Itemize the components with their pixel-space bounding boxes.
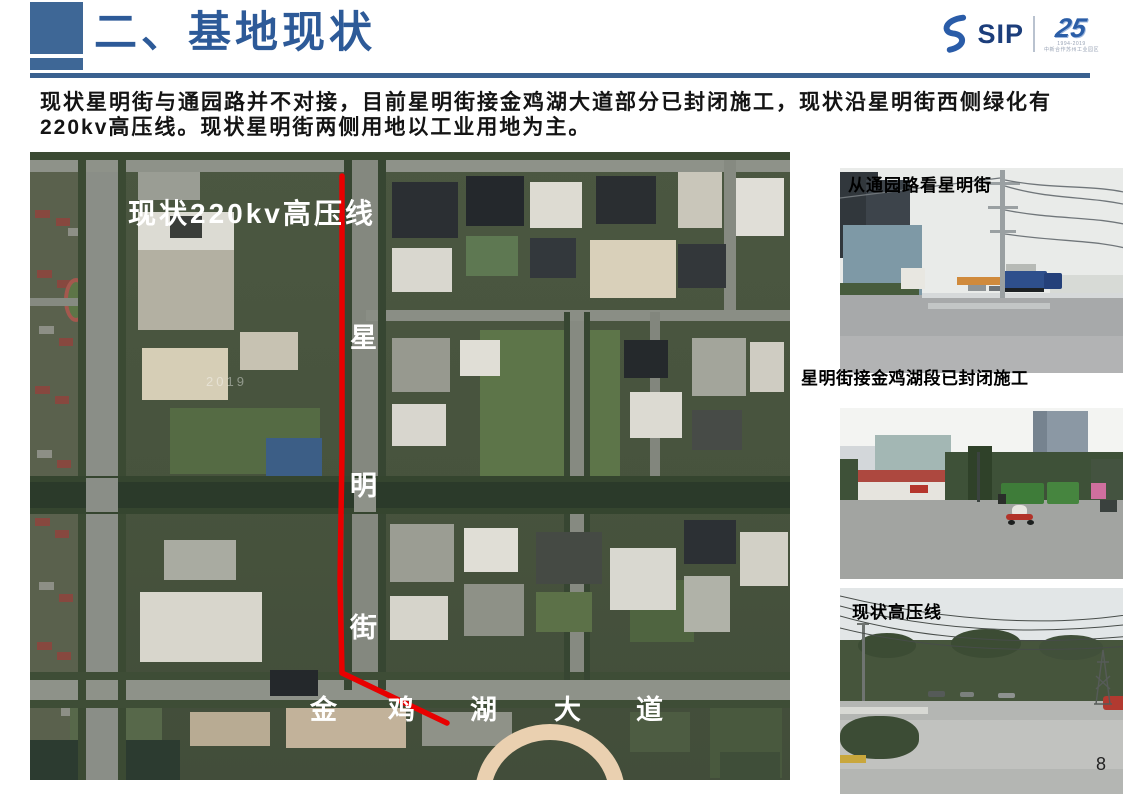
sip-swoosh-icon	[937, 14, 977, 54]
power-pole-icon	[840, 168, 1123, 373]
art-shape	[968, 446, 991, 504]
logo-divider	[1033, 16, 1035, 52]
photo-view-from-tongyuan-road: 从通园路看星明街	[840, 168, 1123, 373]
photo2-art	[840, 408, 1123, 579]
photo3-caption: 现状高压线	[852, 598, 942, 623]
satellite-map: 现状220kv高压线 星 明 街 金 鸡 湖 大 道 2019	[30, 152, 790, 780]
page-title: 二、基地现状	[94, 4, 376, 62]
intro-line-1: 现状星明街与通园路并不对接，目前星明街接金鸡湖大道部分已封闭施工，现状沿星明街西…	[40, 91, 1052, 114]
slide: 二、基地现状 SIP 25 1994-2019 中新合作苏州工业园区 现状星明街…	[0, 0, 1123, 794]
photo-existing-hv-line: 现状高压线	[840, 588, 1123, 794]
avenue-name-char-4: 大	[554, 688, 581, 727]
sip-logo-text: SIP	[977, 19, 1024, 50]
title-underline-rule	[30, 73, 1090, 78]
art-shape	[843, 482, 960, 503]
art-shape	[1047, 482, 1079, 504]
hv-line-label: 现状220kv高压线	[128, 192, 376, 232]
sip-logo: SIP 25 1994-2019 中新合作苏州工业园区	[937, 14, 1099, 54]
art-shape	[1100, 500, 1118, 512]
avenue-name-char-1: 金	[310, 688, 337, 727]
anniversary-block: 25 1994-2019 中新合作苏州工业园区	[1044, 16, 1099, 53]
art-shape	[910, 485, 928, 494]
art-shape	[840, 459, 858, 500]
street-name-char-1: 星	[350, 316, 377, 355]
art-shape	[977, 452, 980, 502]
hv-line-annotation	[30, 152, 790, 780]
title-decoration-bar	[30, 58, 83, 70]
anniversary-caption: 中新合作苏州工业园区	[1044, 47, 1099, 53]
art-shape	[998, 494, 1007, 504]
street-name-char-3: 街	[350, 606, 377, 645]
photo-closed-section	[840, 408, 1123, 579]
title-decoration-square	[30, 2, 83, 54]
intro-paragraph: 现状星明街与通园路并不对接，目前星明街接金鸡湖大道部分已封闭施工，现状沿星明街西…	[40, 90, 1092, 140]
art-shape	[1091, 483, 1106, 498]
avenue-name-char-2: 鸡	[388, 688, 415, 727]
avenue-name-char-5: 道	[636, 688, 663, 727]
art-shape	[843, 470, 960, 482]
avenue-name-char-3: 湖	[470, 688, 497, 727]
photo1-caption: 从通园路看星明街	[848, 171, 992, 196]
art-shape	[1001, 483, 1045, 504]
street-name-char-2: 明	[350, 464, 377, 503]
intro-line-2: 220kv高压线。现状星明街两侧用地以工业用地为主。	[40, 116, 591, 139]
anniversary-number: 25	[1054, 16, 1088, 41]
art-shape	[840, 541, 980, 579]
